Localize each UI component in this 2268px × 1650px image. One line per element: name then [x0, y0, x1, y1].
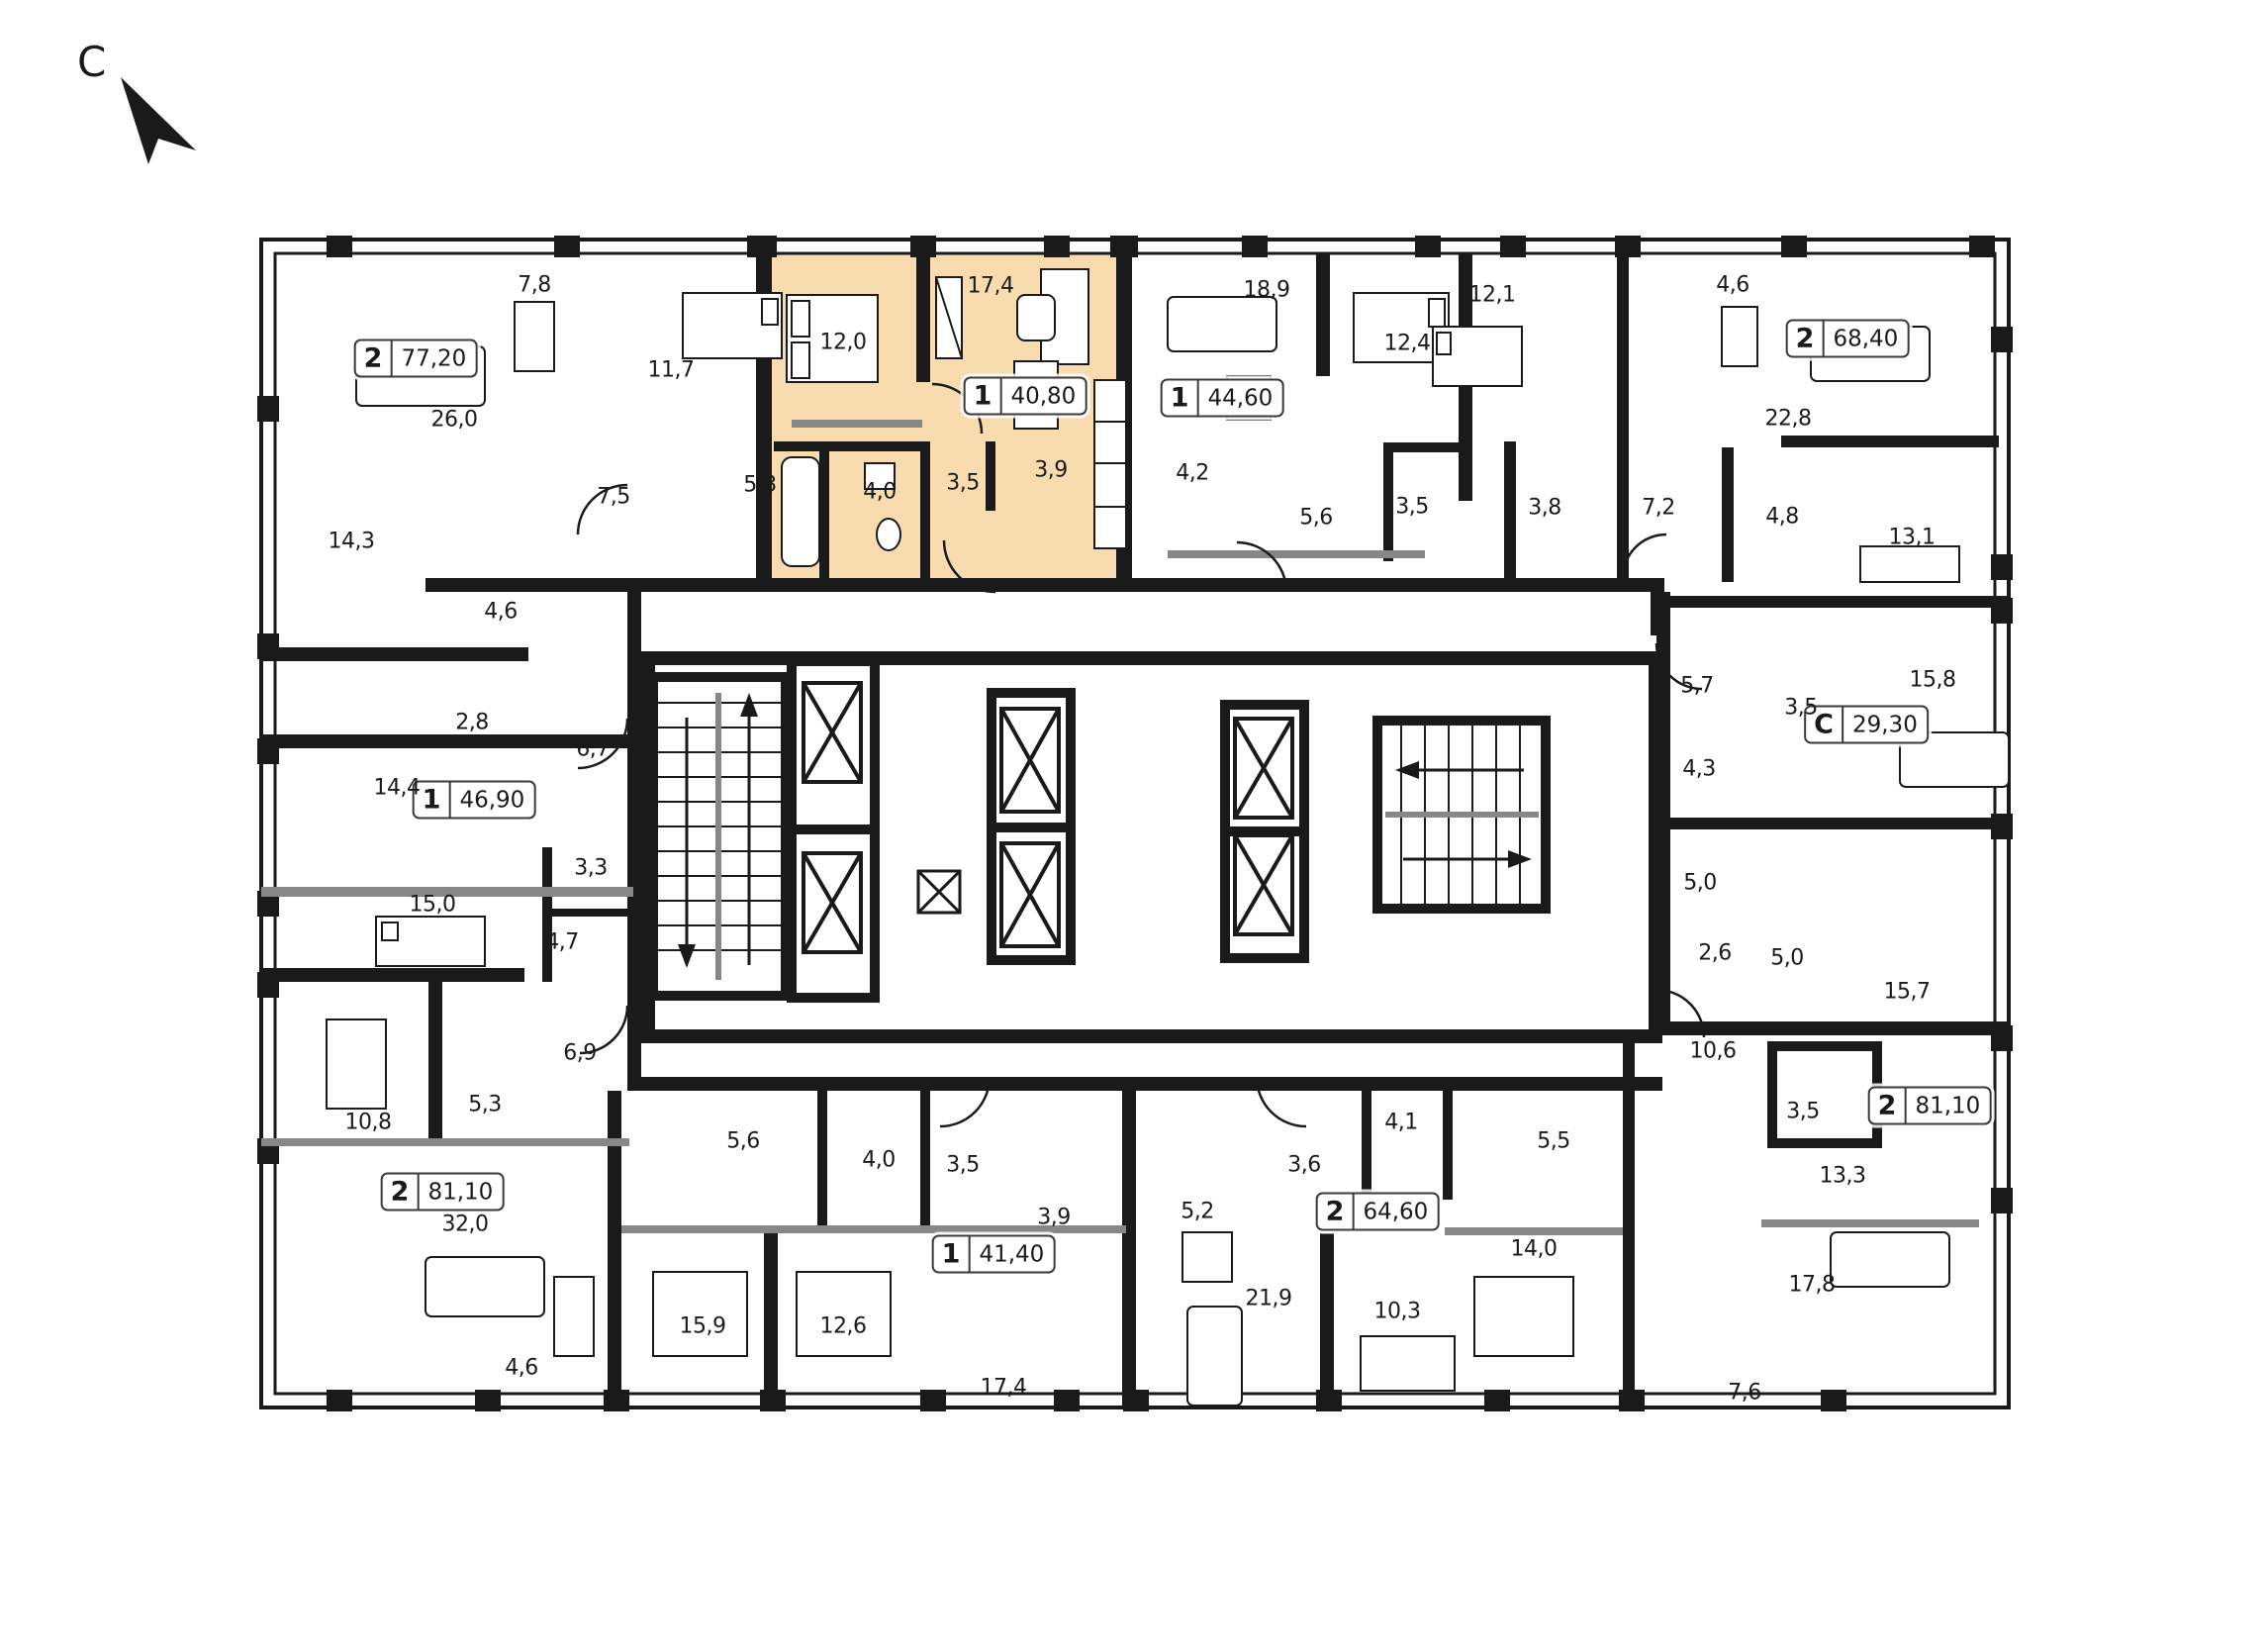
room-area-label: 5,0 [1770, 946, 1804, 971]
apartment-area: 29,30 [1843, 708, 1927, 742]
room-area-label: 12,4 [1384, 332, 1431, 356]
apartment-badge[interactable]: 2 68,40 [1786, 320, 1910, 358]
apartment-area: 44,60 [1198, 381, 1281, 416]
apartment-area: 46,90 [450, 783, 533, 818]
room-area-label: 5,3 [468, 1093, 502, 1117]
apartment-type: 1 [934, 1237, 971, 1272]
room-area-label: 11,7 [648, 358, 695, 383]
room-area-label: 13,3 [1820, 1164, 1866, 1189]
apartment-type: 2 [1870, 1089, 1907, 1123]
room-area-label: 3,9 [1034, 458, 1068, 483]
room-area-label: 17,8 [1789, 1273, 1836, 1298]
apartment-badge[interactable]: 1 41,40 [932, 1235, 1056, 1274]
room-area-label: 14,0 [1511, 1237, 1558, 1262]
room-area-label: 4,6 [505, 1356, 538, 1381]
room-area-label: 7,2 [1642, 496, 1675, 521]
labels-layer: 2 77,20 7,8 26,0 11,7 14,3 7,5 4,6 5,3 1… [0, 0, 2268, 1650]
room-area-label: 7,8 [518, 273, 551, 298]
room-area-label: 2,8 [455, 711, 489, 735]
room-area-label: 2,6 [1698, 941, 1732, 966]
room-area-label: 4,7 [545, 930, 579, 955]
room-area-label: 4,1 [1384, 1111, 1418, 1135]
apartment-area: 81,10 [419, 1175, 502, 1210]
room-area-label: 7,5 [597, 485, 630, 510]
room-area-label: 3,5 [946, 1153, 980, 1178]
room-area-label: 10,3 [1374, 1300, 1421, 1324]
room-area-label: 5,0 [1683, 871, 1717, 896]
apartment-area: 77,20 [392, 341, 475, 376]
apartment-badge[interactable]: 2 64,60 [1316, 1193, 1440, 1231]
room-area-label: 4,6 [1716, 273, 1749, 298]
room-area-label: 7,6 [1728, 1381, 1761, 1406]
room-area-label: 5,6 [1299, 506, 1333, 531]
room-area-label: 4,2 [1176, 461, 1209, 486]
room-area-label: 3,5 [946, 471, 980, 496]
room-area-label: 15,7 [1884, 980, 1931, 1005]
room-area-label: 4,0 [862, 1148, 896, 1173]
room-area-label: 4,0 [863, 480, 897, 505]
room-area-label: 5,7 [1680, 674, 1714, 699]
apartment-type: 2 [383, 1175, 420, 1210]
apartment-badge[interactable]: 2 81,10 [381, 1173, 505, 1212]
room-area-label: 12,0 [820, 331, 867, 355]
apartment-type: 2 [356, 341, 393, 376]
apartment-area: 64,60 [1354, 1195, 1437, 1229]
room-area-label: 3,8 [1528, 496, 1561, 521]
room-area-label: 3,6 [1287, 1153, 1321, 1178]
room-area-label: 3,9 [1037, 1206, 1071, 1230]
apartment-badge[interactable]: 1 46,90 [413, 781, 536, 820]
room-area-label: 10,8 [345, 1111, 392, 1135]
room-area-label: 6,7 [576, 737, 610, 762]
room-area-label: 13,1 [1889, 526, 1936, 550]
apartment-type: 2 [1318, 1195, 1355, 1229]
room-area-label: 4,3 [1682, 757, 1716, 782]
room-area-label: 15,0 [410, 893, 456, 918]
room-area-label: 15,8 [1910, 668, 1956, 693]
apartment-area: 41,40 [970, 1237, 1053, 1272]
apartment-area: 40,80 [1001, 379, 1085, 414]
room-area-label: 3,5 [1786, 1100, 1820, 1124]
room-area-label: 32,0 [442, 1213, 489, 1237]
apartment-area: 81,10 [1906, 1089, 1989, 1123]
room-area-label: 3,5 [1395, 495, 1429, 520]
apartment-badge[interactable]: 2 81,10 [1868, 1087, 1992, 1125]
room-area-label: 5,2 [1181, 1200, 1214, 1224]
room-area-label: 4,8 [1765, 505, 1799, 530]
room-area-label: 12,6 [820, 1314, 867, 1339]
room-area-label: 14,3 [329, 530, 375, 554]
apartment-badge[interactable]: 1 40,80 [964, 377, 1087, 416]
room-area-label: 3,3 [574, 856, 608, 881]
apartment-type: 1 [1163, 381, 1199, 416]
room-area-label: 5,6 [726, 1129, 760, 1154]
room-area-label: 21,9 [1246, 1287, 1292, 1311]
room-area-label: 17,4 [968, 274, 1014, 299]
apartment-type: 2 [1788, 322, 1825, 356]
room-area-label: 5,3 [743, 473, 777, 498]
room-area-label: 5,5 [1537, 1129, 1570, 1154]
apartment-badge[interactable]: 1 44,60 [1161, 379, 1284, 418]
room-area-label: 18,9 [1244, 278, 1290, 303]
room-area-label: 6,9 [563, 1041, 597, 1066]
apartment-type: 1 [966, 379, 1002, 414]
room-area-label: 26,0 [431, 408, 478, 433]
room-area-label: 4,6 [484, 600, 518, 625]
room-area-label: 14,4 [374, 776, 421, 801]
room-area-label: 12,1 [1469, 283, 1516, 308]
room-area-label: 22,8 [1765, 407, 1812, 432]
room-area-label: 10,6 [1690, 1039, 1737, 1064]
room-area-label: 15,9 [680, 1314, 726, 1339]
apartment-badge[interactable]: С 29,30 [1804, 706, 1929, 744]
apartment-badge[interactable]: 2 77,20 [354, 340, 478, 378]
room-area-label: 17,4 [981, 1376, 1027, 1401]
apartment-area: 68,40 [1824, 322, 1907, 356]
floor-plan-canvas: С [0, 0, 2268, 1650]
room-area-label: 3,5 [1784, 696, 1818, 721]
